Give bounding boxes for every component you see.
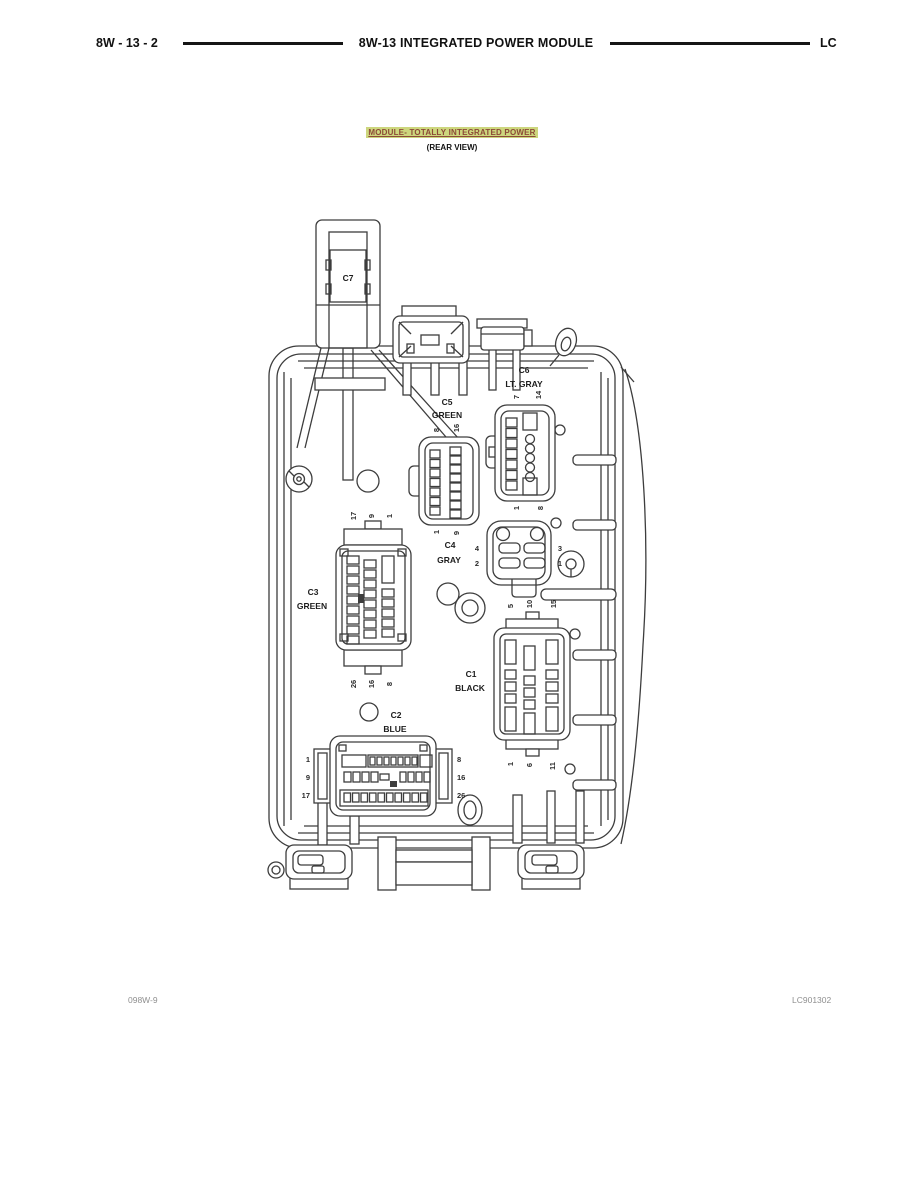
c1-pin-bottom-0: 1	[506, 762, 515, 766]
c1-pin-bottom-1: 6	[525, 763, 534, 767]
c6-color-label: LT. GRAY	[505, 379, 543, 389]
c2-pin-left-1: 9	[306, 773, 310, 782]
c4-color-label: GRAY	[437, 555, 461, 565]
c4-pin-right-1: 1	[558, 559, 562, 568]
c3-pin-bottom-1: 16	[367, 680, 376, 688]
c2-pin-right-1: 16	[457, 773, 465, 782]
c2-label: C2	[391, 710, 402, 720]
c5-pin-bottom-1: 9	[452, 531, 461, 535]
c4-pin-left-1: 2	[475, 559, 479, 568]
c7-label: C7	[343, 273, 354, 283]
c4-pin-right-0: 3	[558, 544, 562, 553]
c5-pin-bottom-0: 1	[432, 530, 441, 534]
manual-page: 8W - 13 - 2 8W-13 INTEGRATED POWER MODUL…	[0, 0, 918, 1188]
c2-color-label: BLUE	[383, 724, 406, 734]
c3-pin-top-2: 1	[385, 514, 394, 518]
mounting-foot-left	[268, 845, 352, 889]
c3-pin-bottom-0: 26	[349, 680, 358, 688]
c2-pin-right-2: 26	[457, 791, 465, 800]
footer-figure-code: 098W-9	[128, 995, 158, 1005]
c6-label: C6	[519, 365, 530, 375]
c3-pin-top-0: 17	[349, 512, 358, 520]
washer-center-icon	[455, 593, 485, 623]
c1-color-label: BLACK	[455, 683, 486, 693]
c3-pin-bottom-2: 8	[385, 682, 394, 686]
mounting-foot-right	[518, 845, 584, 889]
c5-pin-top-0: 8	[432, 428, 441, 432]
c1-pin-top-1: 10	[525, 600, 534, 608]
footer-plate-code: LC901302	[792, 995, 831, 1005]
c3-pin-top-1: 9	[367, 514, 376, 518]
c1-label: C1	[466, 669, 477, 679]
c5-label: C5	[442, 397, 453, 407]
c5-pin-top-1: 16	[452, 424, 461, 432]
c4-label: C4	[445, 540, 456, 550]
c6-pin-bottom-0: 1	[512, 506, 521, 510]
c2-pin-left-2: 17	[302, 791, 310, 800]
c1-pin-bottom-2: 11	[548, 762, 557, 770]
c3-color-label: GREEN	[297, 601, 327, 611]
c3-label: C3	[308, 587, 319, 597]
screw-top-left-icon	[286, 466, 312, 492]
c2-pin-right-0: 8	[457, 755, 461, 764]
c1-pin-top-0: 5	[506, 604, 515, 608]
c1-pin-top-2: 15	[549, 600, 558, 608]
c6-pin-top-1: 14	[534, 390, 543, 399]
c2-pin-left-0: 1	[306, 755, 310, 764]
c6-pin-top-0: 7	[512, 395, 521, 399]
c6-pin-bottom-1: 8	[536, 506, 545, 510]
c5-color-label: GREEN	[432, 410, 462, 420]
tipm-diagram: C7	[0, 0, 918, 1188]
cover-flap	[621, 367, 646, 844]
